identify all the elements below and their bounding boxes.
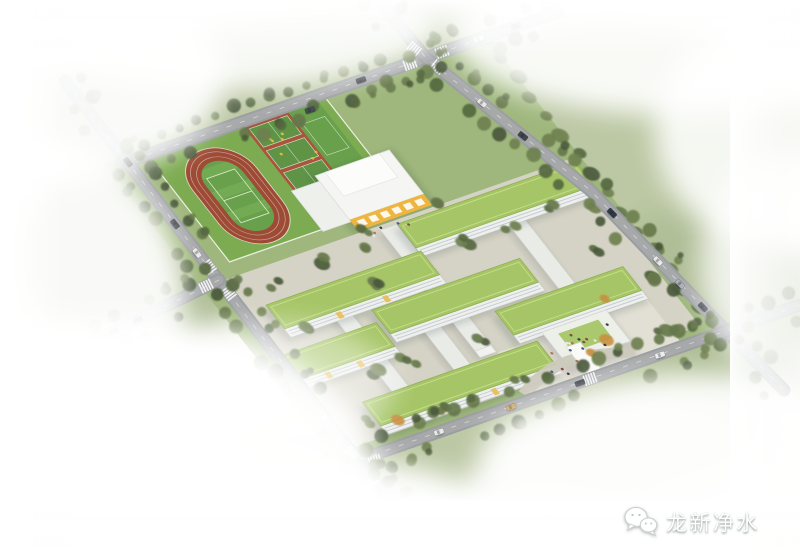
tree — [370, 92, 376, 98]
tree — [200, 227, 209, 236]
tree — [256, 127, 271, 142]
tree — [655, 242, 663, 250]
tree — [149, 167, 163, 181]
tree — [170, 199, 178, 207]
tree — [386, 83, 396, 93]
fog-edge — [0, 500, 800, 560]
tree — [229, 101, 236, 108]
tree — [683, 361, 692, 370]
tree — [553, 179, 564, 190]
fog-edge — [0, 0, 70, 560]
tree — [430, 78, 444, 92]
fog-edge — [0, 0, 800, 60]
fog-cloud — [480, 390, 760, 510]
tree — [477, 117, 491, 131]
tree — [447, 402, 461, 416]
tree — [560, 141, 569, 150]
tree — [504, 386, 515, 397]
tree — [542, 134, 556, 148]
tree — [568, 153, 582, 167]
tree — [509, 138, 520, 149]
fog-cloud — [135, 320, 395, 450]
tree — [350, 97, 360, 107]
tree — [430, 407, 439, 416]
tree — [584, 198, 596, 210]
tree — [592, 351, 607, 366]
tree — [234, 275, 243, 284]
tree — [435, 61, 447, 73]
tree — [412, 414, 421, 423]
tree — [297, 119, 305, 127]
tree — [406, 81, 413, 88]
tree — [243, 287, 252, 296]
tree — [425, 448, 432, 455]
tree — [406, 456, 416, 466]
tree — [541, 372, 550, 381]
tree — [242, 135, 249, 142]
tree — [669, 325, 680, 336]
fog-edge — [730, 0, 800, 560]
tree — [576, 359, 589, 372]
tree — [654, 334, 665, 345]
tree — [257, 307, 267, 317]
campus-aerial-rendering — [0, 0, 800, 560]
tree — [595, 216, 605, 226]
tree — [161, 182, 170, 191]
tree — [283, 87, 293, 97]
tree — [246, 97, 256, 107]
tree — [184, 146, 197, 159]
tree — [219, 307, 231, 319]
tree — [456, 62, 464, 70]
tree — [189, 213, 195, 219]
tree — [211, 288, 224, 301]
tree — [492, 127, 506, 141]
tree — [690, 323, 696, 329]
rendering-image: 龙新净水 — [0, 0, 800, 560]
tree — [648, 273, 661, 286]
tree — [626, 210, 639, 223]
tree — [467, 394, 475, 402]
tree — [609, 232, 622, 245]
tree — [646, 224, 655, 233]
tree — [631, 337, 644, 350]
tree — [601, 178, 613, 190]
tree — [264, 87, 274, 97]
tree — [502, 93, 509, 100]
tree — [539, 164, 553, 178]
tree — [462, 104, 476, 118]
tree — [276, 120, 286, 130]
tree — [374, 429, 388, 443]
tree — [180, 260, 193, 273]
tree — [678, 252, 684, 258]
tree — [416, 75, 424, 83]
tree — [614, 343, 622, 351]
tree — [526, 147, 541, 162]
tree — [482, 84, 494, 96]
tree — [700, 351, 709, 360]
tree — [167, 154, 176, 163]
tree — [199, 262, 211, 274]
